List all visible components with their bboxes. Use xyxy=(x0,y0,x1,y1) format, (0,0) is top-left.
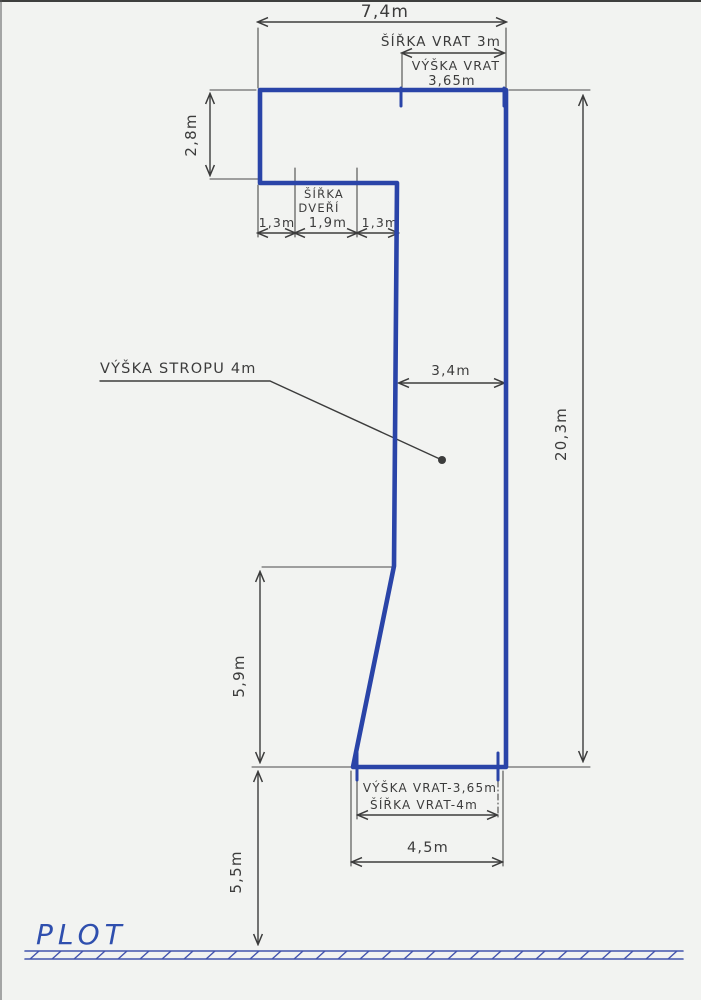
bottom-gate-height-label: VÝŠKA VRAT-3,65m xyxy=(363,780,497,795)
dim-mid-width-label: 3,4m xyxy=(431,363,470,379)
ceiling-height-leader-dot xyxy=(438,456,446,464)
top-gate-height-label-line1: VÝŠKA VRAT xyxy=(412,58,501,73)
bottom-gate-width-label: ŠÍŘKA VRAT-4m xyxy=(370,797,478,812)
scan-edge-top xyxy=(0,0,701,2)
door-width-caption-line1: ŠÍŘKA xyxy=(304,186,344,201)
dim-door-width-label: 1,9m xyxy=(309,216,347,231)
ceiling-height-label: VÝŠKA STROPU 4m xyxy=(100,359,257,377)
fence-label: PLOT xyxy=(36,918,127,951)
dim-right-height-label: 20,3m xyxy=(552,407,570,461)
dim-bottom-width-label: 4,5m xyxy=(407,840,449,856)
dim-upper-left-label: 2,8m xyxy=(182,113,200,156)
top-gate-width-label: ŠÍŘKA VRAT 3m xyxy=(381,32,501,50)
dim-door-right-label: 1,3m xyxy=(362,215,399,230)
scan-edge-left xyxy=(0,0,2,1000)
dim-top-width-label: 7,4m xyxy=(361,2,409,22)
fence-hatching xyxy=(25,951,683,959)
door-width-caption-line2: DVEŘÍ xyxy=(298,200,339,215)
hand-drawn-floor-plan: 7,4m ŠÍŘKA VRAT 3m VÝŠKA VRAT 3,65m 2,8m… xyxy=(0,0,701,1000)
scanned-sketch-sheet: 7,4m ŠÍŘKA VRAT 3m VÝŠKA VRAT 3,65m 2,8m… xyxy=(0,0,701,1000)
dim-lower-left-label: 5,9m xyxy=(230,654,248,697)
dim-door-left-label: 1,3m xyxy=(259,215,296,230)
top-gate-height-label-line2: 3,65m xyxy=(428,74,476,89)
dim-fence-distance-label: 5,5m xyxy=(227,850,245,893)
